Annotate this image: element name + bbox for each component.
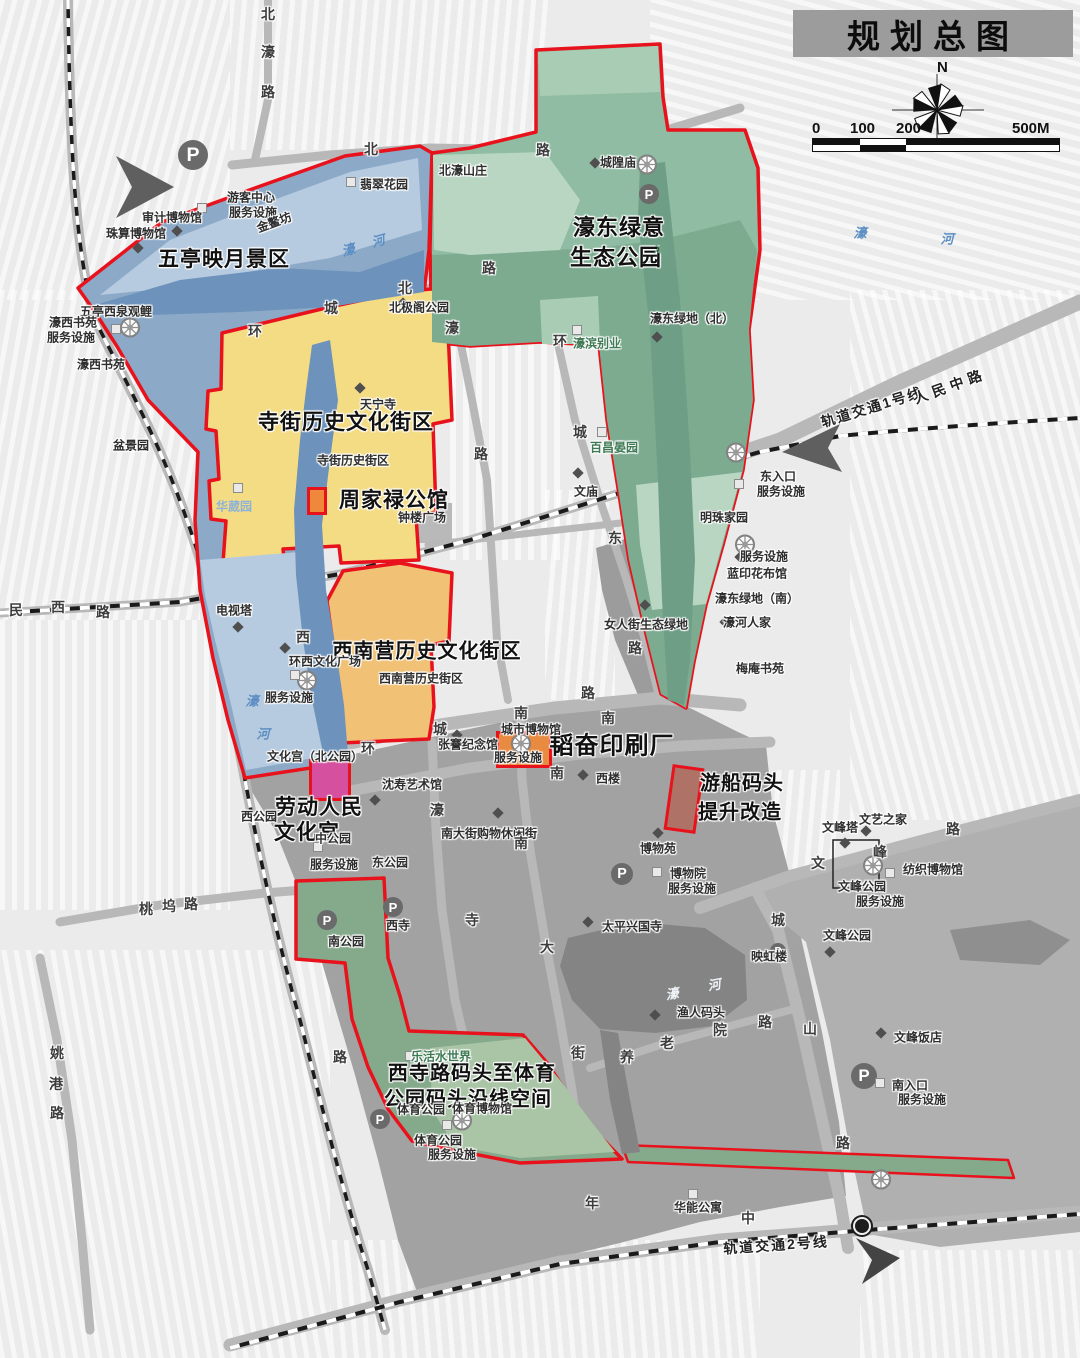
scale-bar: 0 100 200 500M <box>812 120 1060 152</box>
scale-label-0: 0 <box>812 120 820 137</box>
road-haodong <box>452 300 508 700</box>
map-title-bar: 规划总图 <box>793 10 1073 57</box>
road-yaogang <box>40 958 90 1330</box>
planning-map-canvas: PPPPPPPP 五亭映月景区濠东绿意生态公园寺街历史文化街区周家禄公馆西南营历… <box>0 0 1080 1358</box>
arrow-northwest-entry <box>116 156 174 218</box>
scale-bar-segments <box>812 138 1060 152</box>
haodong-light-haobin <box>540 296 600 344</box>
haodong-light-tongue <box>538 46 660 96</box>
map-title: 规划总图 <box>847 10 1019 58</box>
central-urban-mass <box>240 691 846 1300</box>
map-graphics <box>0 0 1080 1358</box>
compass-north-label: N <box>937 59 948 76</box>
road-taowu <box>60 888 330 922</box>
haohe-dark-water <box>560 922 747 1033</box>
scale-label-100: 100 <box>850 120 875 137</box>
scale-label-500: 500M <box>1012 120 1050 137</box>
road-beihao <box>255 0 268 160</box>
scale-label-200: 200 <box>896 120 921 137</box>
arrow-southeast-exit <box>856 1238 900 1284</box>
region-xinanying-historic <box>327 563 452 743</box>
